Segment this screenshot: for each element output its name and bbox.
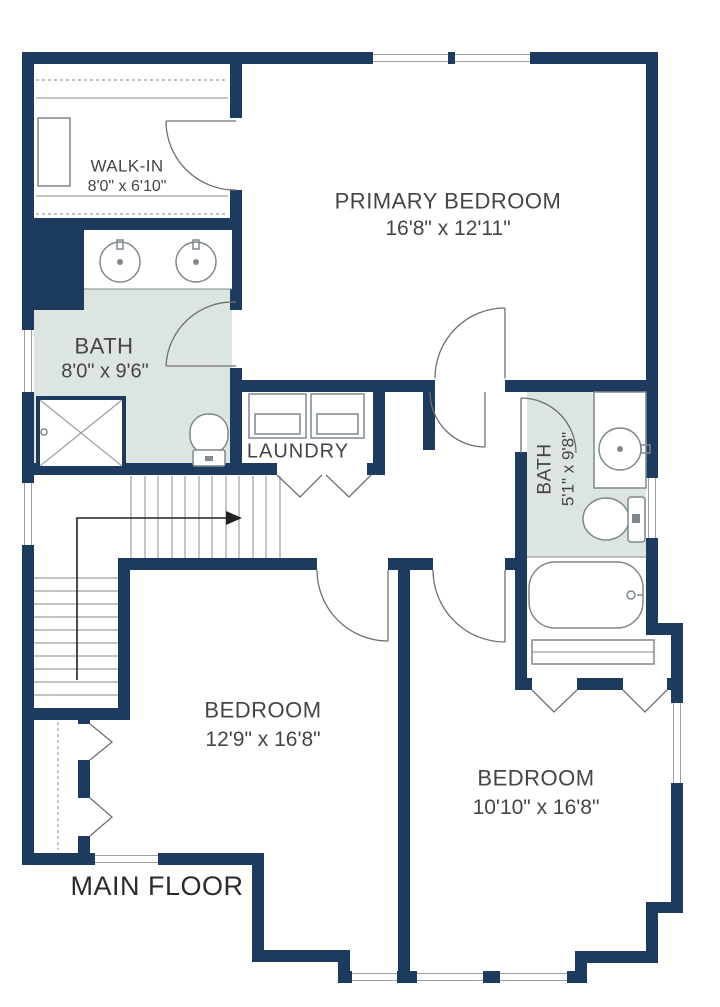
room-label-bath-ensuite: BATH bbox=[74, 332, 133, 360]
toilet-hall-bath bbox=[583, 497, 645, 542]
bathtub bbox=[527, 557, 646, 628]
room-dimensions: 12'9" x 16'8" bbox=[205, 727, 320, 753]
room-dimensions: 8'0" x 9'6" bbox=[61, 360, 148, 385]
window bbox=[373, 52, 530, 64]
room-dims-bedroom-left: 12'9" x 16'8" bbox=[205, 727, 320, 753]
window bbox=[417, 971, 483, 983]
door-primary-bedroom bbox=[435, 308, 505, 378]
window bbox=[22, 330, 34, 392]
room-dimensions: 16'8" x 12'11" bbox=[385, 216, 510, 242]
room-name: BEDROOM bbox=[204, 696, 321, 724]
door-bedroom-left bbox=[317, 570, 388, 641]
room-dimensions: 5'1" x 9'8" bbox=[557, 432, 578, 506]
washer-icon bbox=[249, 394, 306, 438]
window bbox=[671, 703, 683, 783]
shower bbox=[38, 398, 124, 468]
room-name: WALK-IN bbox=[90, 155, 163, 176]
room-name: BATH bbox=[534, 432, 558, 506]
room-dims-bath-ensuite: 8'0" x 9'6" bbox=[61, 360, 148, 385]
room-dims-walk-in: 8'0" x 6'10" bbox=[88, 177, 167, 197]
room-name: PRIMARY BEDROOM bbox=[335, 187, 562, 215]
window bbox=[646, 478, 658, 538]
staircase bbox=[34, 476, 280, 695]
room-dimensions: 10'10" x 16'8" bbox=[473, 795, 600, 821]
vanity-double-sink bbox=[84, 230, 232, 289]
floor-plan: WALK-IN 8'0" x 6'10" PRIMARY BEDROOM 16'… bbox=[0, 0, 720, 1007]
room-label-primary-bedroom: PRIMARY BEDROOM bbox=[335, 187, 562, 215]
room-label-bedroom-left: BEDROOM bbox=[204, 696, 321, 724]
window bbox=[95, 853, 158, 865]
window bbox=[500, 971, 567, 983]
bifold-doors-laundry bbox=[277, 475, 371, 497]
bifold-doors-bedroom-right-closet bbox=[532, 690, 667, 712]
room-dims-bedroom-right: 10'10" x 16'8" bbox=[473, 795, 600, 821]
closet-shelf-bedroom-right bbox=[532, 640, 654, 664]
floor-plan-svg bbox=[0, 0, 720, 1007]
stair-direction-arrow bbox=[77, 511, 242, 680]
window bbox=[22, 483, 34, 545]
room-label-laundry: LAUNDRY bbox=[247, 440, 349, 465]
toilet-ensuite bbox=[190, 414, 228, 466]
floor-title: MAIN FLOOR bbox=[70, 870, 243, 904]
room-dimensions: 8'0" x 6'10" bbox=[88, 177, 167, 197]
room-label-walk-in: WALK-IN bbox=[90, 155, 163, 176]
room-label-bath-hall: BATH 5'1" x 9'8" bbox=[534, 432, 579, 506]
door-walk-in bbox=[166, 121, 236, 190]
room-name: BEDROOM bbox=[477, 764, 594, 792]
dryer-icon bbox=[311, 394, 364, 438]
vanity-sink-hall-bath bbox=[594, 392, 650, 488]
room-label-bedroom-right: BEDROOM bbox=[477, 764, 594, 792]
door-hallway bbox=[430, 392, 485, 447]
door-bedroom-right bbox=[433, 570, 505, 642]
room-name: BATH bbox=[74, 332, 133, 360]
room-dims-primary-bedroom: 16'8" x 12'11" bbox=[385, 216, 510, 242]
room-name: LAUNDRY bbox=[247, 440, 349, 465]
window bbox=[352, 971, 397, 983]
